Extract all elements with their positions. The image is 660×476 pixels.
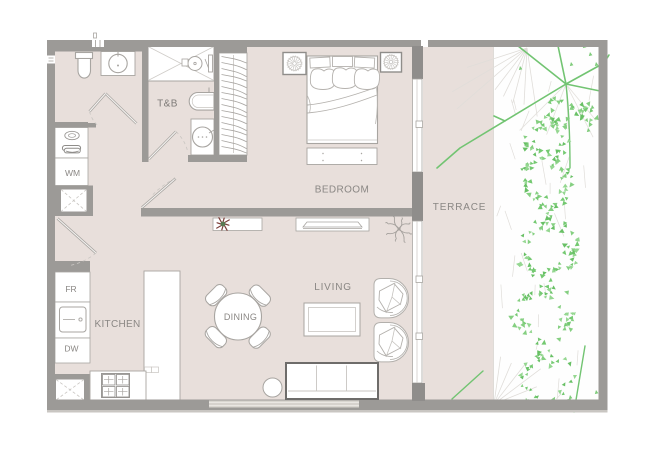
svg-text:FR: FR [65,284,76,294]
svg-text:TERRACE: TERRACE [433,202,486,213]
svg-text:T&B: T&B [157,99,178,110]
svg-text:BEDROOM: BEDROOM [315,185,369,196]
svg-text:KITCHEN: KITCHEN [95,319,141,330]
svg-text:WM: WM [65,168,80,178]
svg-text:DINING: DINING [224,312,257,322]
svg-text:LIVING: LIVING [314,282,352,293]
svg-text:DW: DW [64,344,78,354]
